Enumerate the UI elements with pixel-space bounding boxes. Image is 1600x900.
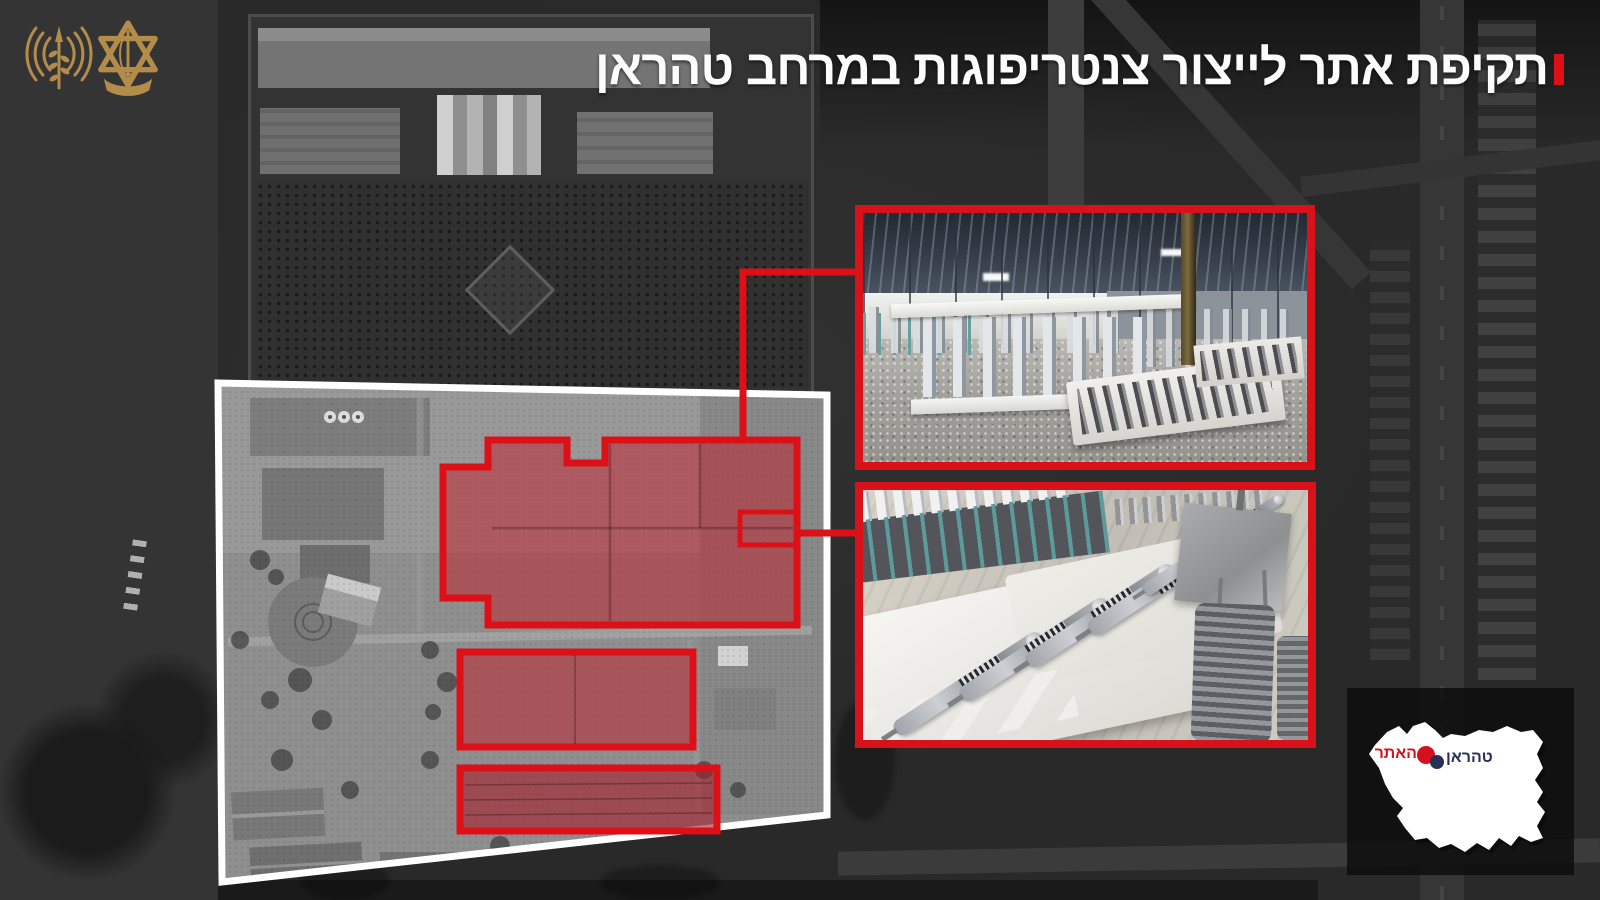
- page-title: תקיפת אתר לייצור צנטריפוגות במרחב טהראן: [595, 40, 1548, 96]
- gold-pillar: [1181, 213, 1196, 365]
- highlight-building-main: [443, 440, 797, 625]
- idf-emblem-icon: [94, 18, 162, 100]
- tehran-label: טהראן: [1446, 749, 1493, 767]
- inset-photo-centrifuge-hall: [855, 205, 1315, 470]
- rotor-stack: [1200, 343, 1298, 381]
- title-accent-bar: [1554, 54, 1564, 85]
- inset-photo-rotor-closeup: [855, 482, 1316, 748]
- iran-silhouette: [1369, 722, 1545, 852]
- site-label: האתר: [1375, 745, 1417, 763]
- infographic-canvas: תקיפת אתר לייצור צנטריפוגות במרחב טהראן: [0, 0, 1600, 900]
- iran-map: [1347, 688, 1574, 875]
- iran-map-card: האתר טהראן: [1347, 688, 1574, 875]
- bellows-stack: [1191, 603, 1276, 744]
- idf-spokesperson-emblem-icon: [24, 20, 94, 96]
- highlight-building-mid: [460, 652, 693, 747]
- tehran-dot: [1430, 755, 1444, 769]
- bellows-stack: [1277, 636, 1315, 740]
- sign-panel: [1174, 503, 1292, 612]
